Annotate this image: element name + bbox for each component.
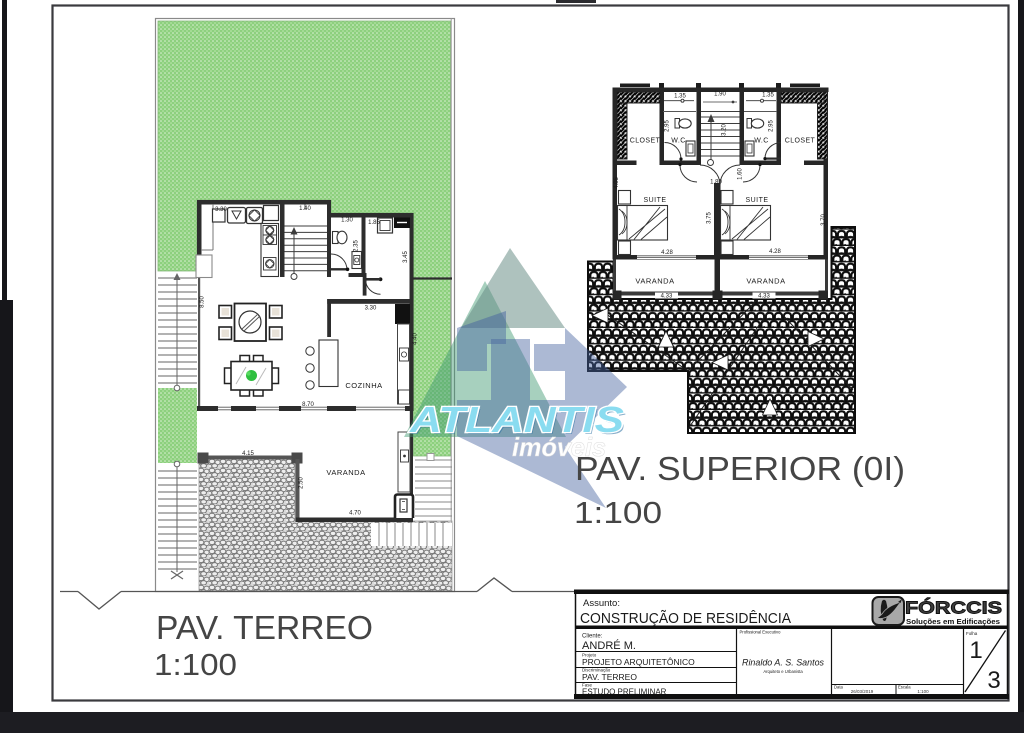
svg-text:1.80: 1.80 — [710, 180, 722, 186]
svg-text:VARANDA: VARANDA — [326, 468, 365, 477]
svg-text:4.33: 4.33 — [661, 294, 673, 300]
svg-text:CONSTRUÇÃO DE RESIDÊNCIA: CONSTRUÇÃO DE RESIDÊNCIA — [580, 610, 791, 627]
svg-text:PAV. TERREO: PAV. TERREO — [156, 609, 373, 646]
svg-text:2.35: 2.35 — [354, 240, 360, 252]
svg-text:8.70: 8.70 — [302, 402, 314, 408]
svg-text:Data: Data — [834, 685, 844, 690]
svg-text:3.70: 3.70 — [821, 214, 827, 226]
svg-text:Folha: Folha — [966, 631, 978, 636]
svg-text:SUITE: SUITE — [745, 197, 768, 204]
svg-text:PAV. SUPERIOR (0I): PAV. SUPERIOR (0I) — [575, 450, 905, 487]
svg-text:1.35: 1.35 — [762, 93, 774, 99]
svg-text:PAV. TERREO: PAV. TERREO — [582, 672, 637, 682]
svg-text:Profissional Executivo: Profissional Executivo — [740, 630, 782, 635]
svg-text:2.50: 2.50 — [299, 477, 305, 489]
svg-text:4.70: 4.70 — [349, 511, 361, 517]
svg-text:1.30: 1.30 — [341, 218, 353, 224]
svg-text:3.75: 3.75 — [707, 212, 713, 224]
svg-text:1.90: 1.90 — [714, 92, 726, 98]
svg-text:4.15: 4.15 — [242, 451, 254, 457]
svg-text:1.35: 1.35 — [674, 94, 686, 100]
svg-text:4.28: 4.28 — [769, 249, 781, 255]
svg-text:1:100: 1:100 — [154, 647, 237, 682]
svg-text:Assunto:: Assunto: — [583, 598, 620, 609]
svg-text:CLOSET: CLOSET — [785, 138, 816, 145]
svg-text:Arquiteto e Urbanista: Arquiteto e Urbanista — [763, 669, 803, 674]
svg-text:W.C: W.C — [754, 138, 768, 145]
svg-text:1.60: 1.60 — [738, 168, 744, 180]
svg-text:3: 3 — [987, 667, 1000, 694]
svg-text:COZINHA: COZINHA — [345, 381, 382, 390]
svg-text:VARANDA: VARANDA — [746, 277, 785, 286]
svg-text:1:100: 1:100 — [917, 689, 929, 694]
svg-text:3.30: 3.30 — [215, 207, 227, 213]
svg-text:Cliente:: Cliente: — [582, 634, 603, 640]
svg-text:4.40: 4.40 — [413, 333, 419, 345]
svg-text:2.95: 2.95 — [665, 120, 671, 132]
svg-text:4.05: 4.05 — [614, 177, 620, 189]
svg-text:8.50: 8.50 — [200, 296, 206, 308]
svg-text:1: 1 — [969, 637, 982, 664]
svg-text:ANDRÉ M.: ANDRÉ M. — [582, 639, 636, 652]
svg-text:VARANDA: VARANDA — [635, 277, 674, 286]
svg-text:3.20: 3.20 — [722, 124, 728, 136]
svg-text:PROJETO ARQUITETÔNICO: PROJETO ARQUITETÔNICO — [582, 657, 695, 667]
svg-text:4.28: 4.28 — [661, 250, 673, 256]
svg-text:26/03/2019: 26/03/2019 — [851, 689, 874, 694]
svg-text:2.95: 2.95 — [769, 120, 775, 132]
svg-text:Soluções em Edificações: Soluções em Edificações — [906, 617, 1000, 626]
svg-text:W.C: W.C — [671, 138, 685, 145]
svg-text:3.30: 3.30 — [365, 306, 377, 312]
svg-text:1.85: 1.85 — [368, 220, 380, 226]
svg-text:1:100: 1:100 — [574, 495, 662, 530]
svg-text:1.40: 1.40 — [299, 206, 311, 212]
svg-text:3.45: 3.45 — [403, 251, 409, 263]
svg-text:CLOSET: CLOSET — [630, 138, 661, 145]
svg-text:Rinaldo A. S. Santos: Rinaldo A. S. Santos — [742, 658, 824, 669]
svg-text:SUITE: SUITE — [643, 197, 666, 204]
svg-text:FÓRCCIS: FÓRCCIS — [905, 597, 1002, 618]
svg-text:4.33: 4.33 — [758, 294, 770, 300]
svg-text:Escala: Escala — [898, 685, 911, 690]
